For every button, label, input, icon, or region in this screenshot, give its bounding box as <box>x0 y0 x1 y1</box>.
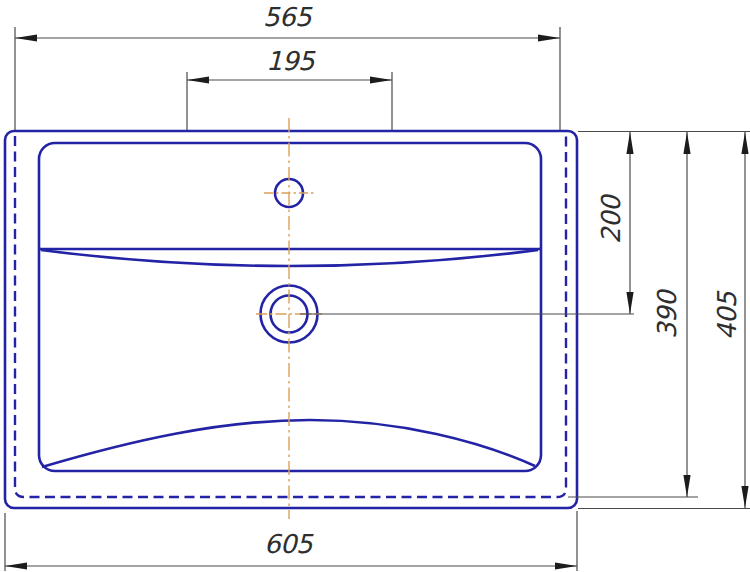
dim-label-390: 390 <box>652 288 682 339</box>
arrow-up-icon <box>741 132 748 154</box>
dim-label-195: 195 <box>266 46 316 76</box>
arrow-down-icon <box>626 292 633 314</box>
dim-faucet-ledge: 195 <box>187 46 392 130</box>
arrow-up-icon <box>626 132 633 154</box>
sink-outline-group <box>5 131 577 508</box>
arrow-down-icon <box>741 486 748 508</box>
hidden-edge-dashed <box>15 136 566 497</box>
dim-label-200: 200 <box>596 193 626 244</box>
sink-outer-edge <box>5 131 577 508</box>
arrow-left-icon <box>5 562 27 569</box>
dim-bottom-width: 605 <box>5 511 577 571</box>
dim-top-width-lines <box>15 27 560 130</box>
dim-label-565: 565 <box>263 2 313 32</box>
arrow-right-icon <box>555 562 577 569</box>
arrow-down-icon <box>683 475 690 497</box>
arrow-right-icon <box>370 76 392 83</box>
dim-body-depth: 390 <box>652 132 691 497</box>
arrow-up-icon <box>683 132 690 154</box>
dim-overall-depth: 405 <box>712 132 749 508</box>
dim-label-605: 605 <box>264 529 314 559</box>
arrow-left-icon <box>15 34 37 41</box>
sink-technical-drawing: 565 195 605 200 <box>0 0 750 572</box>
dim-drain-offset: 200 <box>596 132 634 314</box>
dim-label-405: 405 <box>712 290 742 340</box>
arrow-left-icon <box>187 76 209 83</box>
centerlines-group <box>256 118 322 519</box>
drawing-canvas: 565 195 605 200 <box>0 0 750 572</box>
basin-rim <box>39 143 541 471</box>
right-extension-lines <box>300 132 750 509</box>
arrow-right-icon <box>538 34 560 41</box>
